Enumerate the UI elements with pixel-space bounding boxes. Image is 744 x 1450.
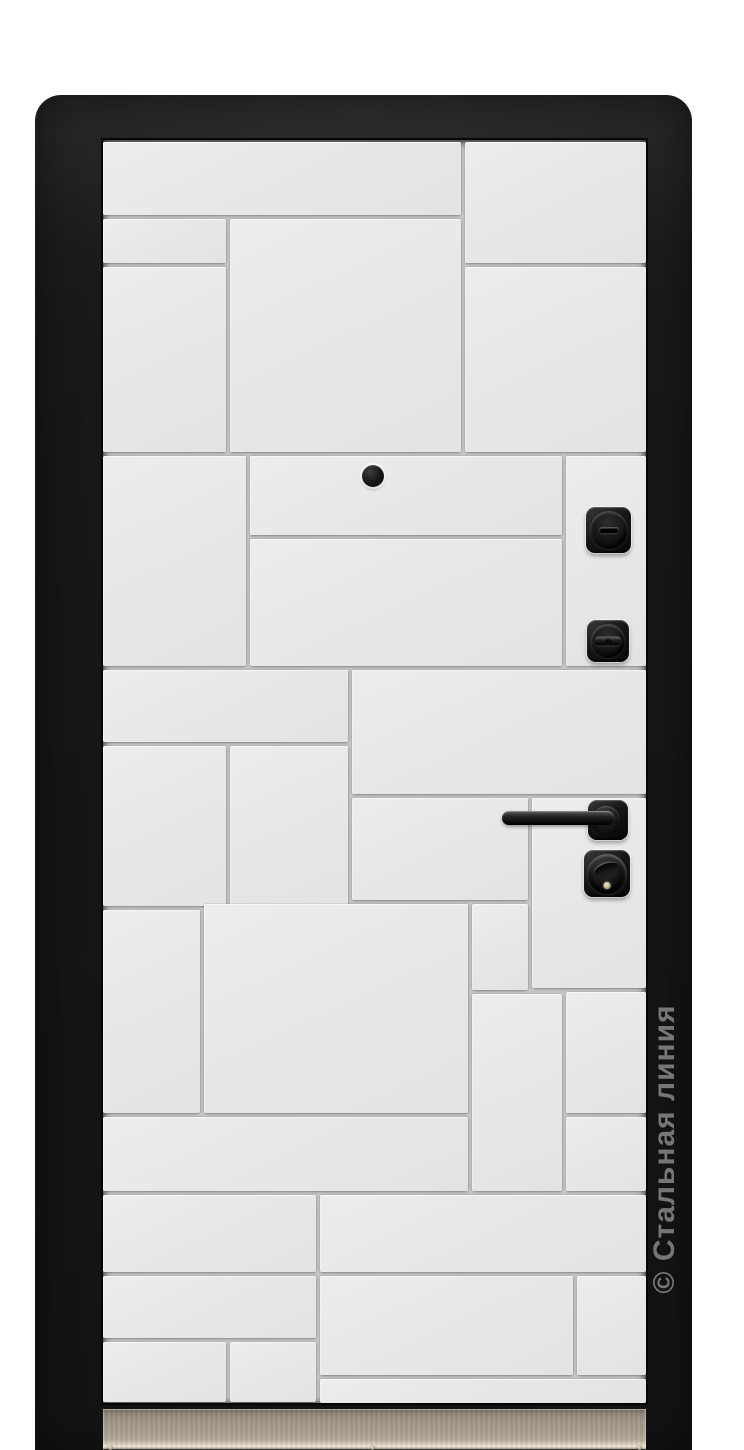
lower-thumbturn-lock (587, 620, 629, 662)
door-panel (320, 1276, 573, 1375)
door-panel (566, 992, 646, 1113)
door-panel (103, 1195, 316, 1272)
keyhole-dot (604, 882, 611, 889)
door-panel (103, 142, 461, 215)
door-panel (103, 456, 246, 666)
cylinder-lock (584, 850, 630, 897)
upper-thumbturn-lock (586, 507, 631, 553)
door-panel (566, 1117, 646, 1191)
door-panel (204, 904, 468, 1113)
door-panel (230, 1342, 316, 1402)
door-panel (472, 994, 562, 1191)
door-panel (103, 267, 226, 452)
door-panel (103, 670, 348, 742)
door-panel (103, 1276, 316, 1338)
thumbturn-wing (595, 637, 622, 646)
door-panel (103, 1342, 226, 1402)
door-panel (465, 267, 646, 452)
door-panel (103, 746, 226, 906)
kick-plate-screw (108, 1445, 113, 1450)
lower-thumbturn-knob (591, 624, 625, 658)
door-panel (103, 1117, 468, 1191)
door-panel (103, 219, 226, 263)
door-panel (352, 798, 528, 900)
door-panel (250, 539, 562, 666)
door-panel (472, 904, 528, 990)
thumbturn-slot (599, 527, 619, 533)
cylinder-ring (587, 854, 627, 894)
cylinder-keyhole-cover (593, 860, 622, 880)
kick-plate (103, 1409, 646, 1450)
door-panel (320, 1195, 646, 1272)
product-photo-stage: © Стальная линия (0, 0, 744, 1450)
kick-plate-screw (637, 1445, 642, 1450)
door-panel (230, 746, 348, 906)
door-panel (465, 142, 646, 263)
door-panel (250, 456, 562, 535)
upper-thumbturn-knob (590, 511, 628, 549)
door-panel (352, 670, 646, 794)
peephole-lens (362, 465, 384, 487)
door-panel (320, 1379, 646, 1403)
kick-plate-screw (370, 1445, 375, 1450)
door-panel (230, 219, 461, 452)
lever-handle (502, 811, 614, 825)
door-panel (103, 910, 200, 1113)
door-panel (577, 1276, 646, 1375)
